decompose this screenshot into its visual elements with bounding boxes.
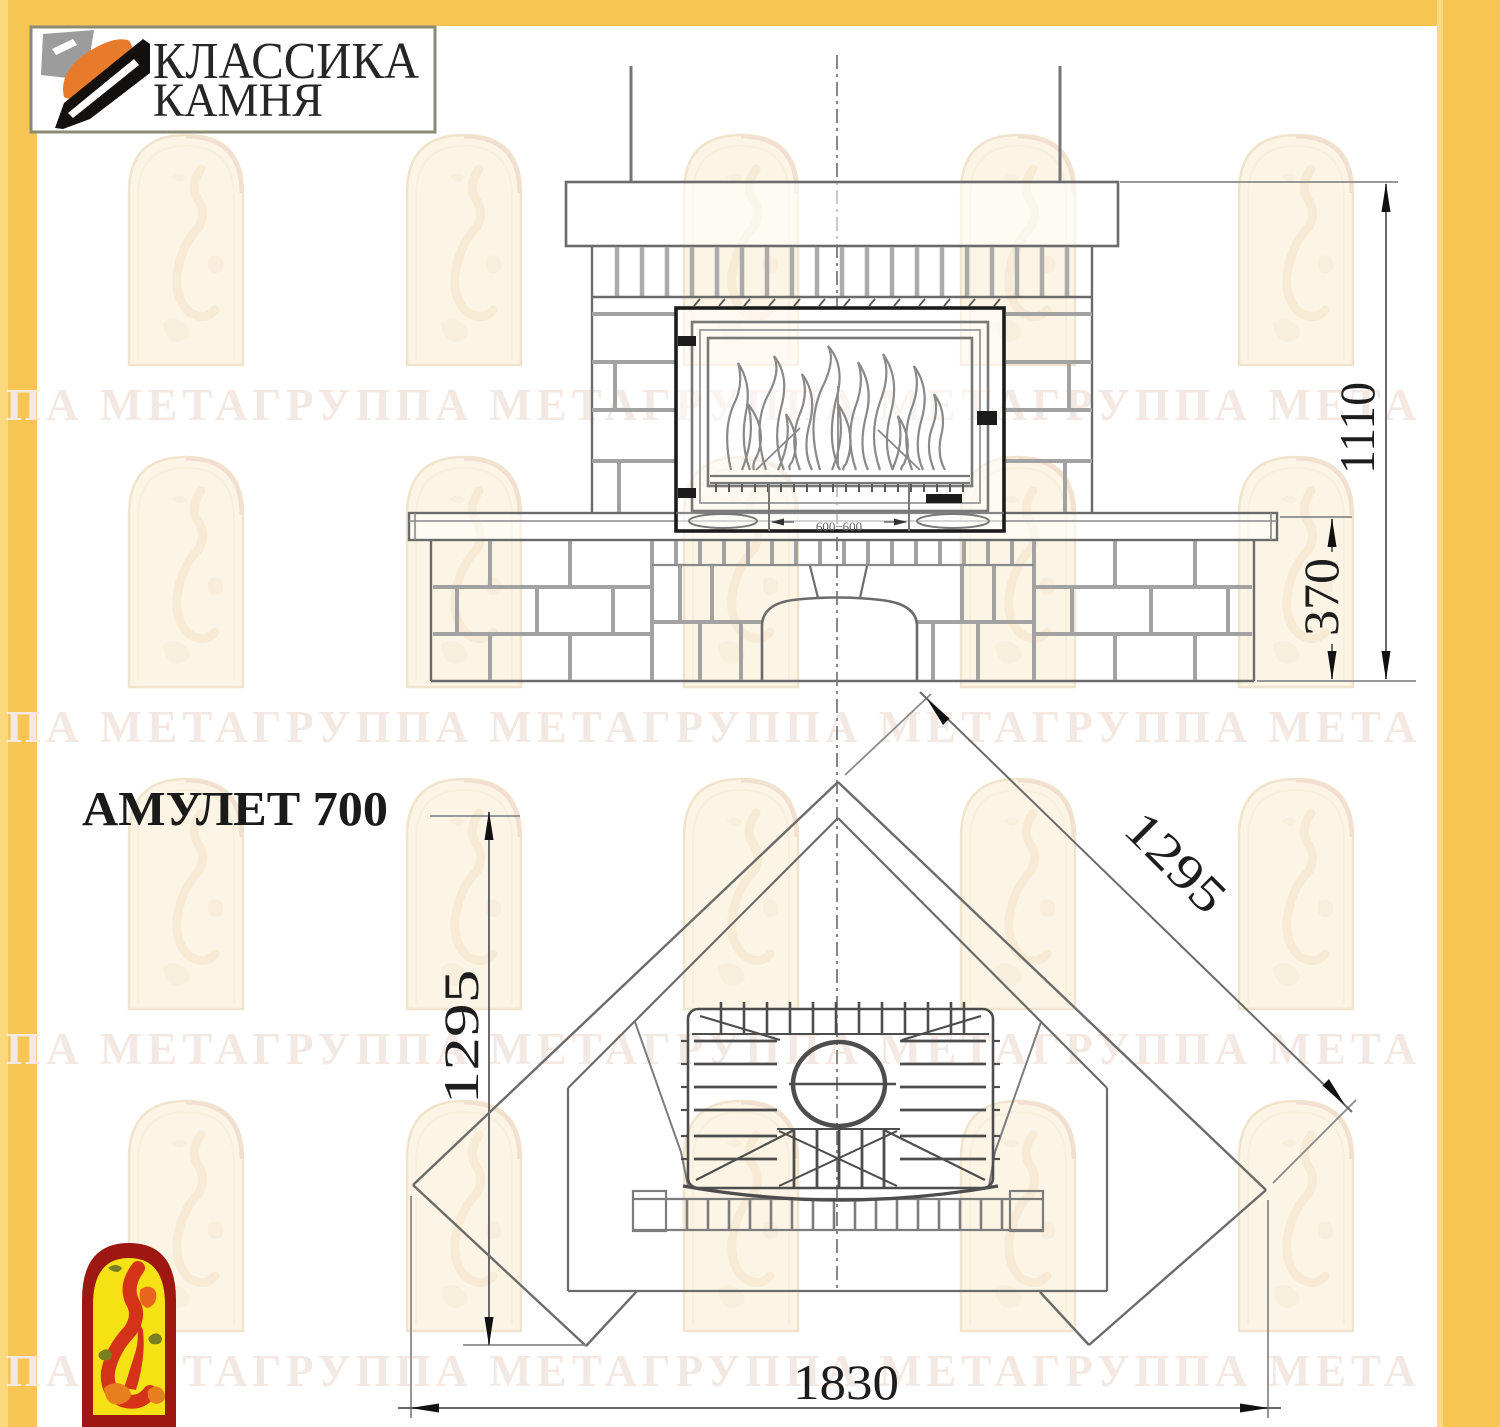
svg-text:1295: 1295 bbox=[433, 970, 489, 1105]
svg-text:ППА МЕТАГРУППА МЕТАГРУППА МЕТА: ППА МЕТАГРУППА МЕТАГРУППА МЕТАГРУППА МЕТ… bbox=[0, 1346, 1421, 1396]
svg-text:1830: 1830 bbox=[793, 1354, 899, 1410]
svg-text:ППА МЕТАГРУППА МЕТАГРУППА МЕТА: ППА МЕТАГРУППА МЕТАГРУППА МЕТАГРУППА МЕТ… bbox=[0, 702, 1421, 752]
svg-text:АМУЛЕТ 700: АМУЛЕТ 700 bbox=[82, 781, 388, 836]
svg-text:ППА МЕТАГРУППА МЕТАГРУППА МЕТА: ППА МЕТАГРУППА МЕТАГРУППА МЕТАГРУППА МЕТ… bbox=[0, 1024, 1421, 1074]
svg-text:600−600: 600−600 bbox=[816, 519, 862, 534]
svg-text:1110: 1110 bbox=[1329, 382, 1385, 474]
svg-text:370: 370 bbox=[1293, 558, 1349, 636]
svg-text:КАМНЯ: КАМНЯ bbox=[153, 74, 323, 127]
